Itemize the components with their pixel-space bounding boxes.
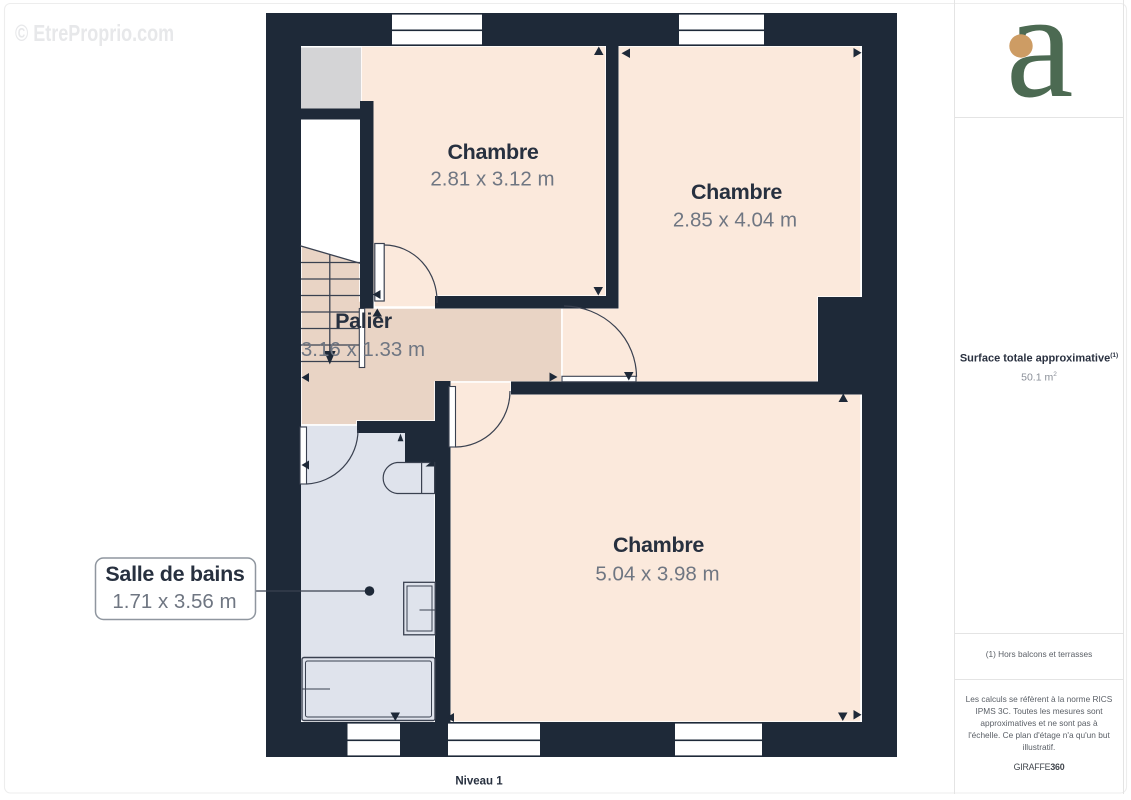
svg-text:Salle de bains: Salle de bains xyxy=(105,562,245,586)
svg-text:Chambre: Chambre xyxy=(613,533,704,557)
svg-text:© EtreProprio.com: © EtreProprio.com xyxy=(15,21,174,47)
svg-text:Palier: Palier xyxy=(335,309,393,333)
svg-text:5.04 x 3.98 m: 5.04 x 3.98 m xyxy=(595,563,719,586)
svg-text:2.81 x 3.12 m: 2.81 x 3.12 m xyxy=(430,168,554,191)
svg-text:Chambre: Chambre xyxy=(447,140,538,164)
svg-text:Niveau 1: Niveau 1 xyxy=(455,776,503,788)
svg-text:Chambre: Chambre xyxy=(691,180,782,204)
svg-text:3.16 x 1.33 m: 3.16 x 1.33 m xyxy=(301,338,425,361)
svg-text:a: a xyxy=(1006,0,1073,117)
svg-text:1.71 x 3.56 m: 1.71 x 3.56 m xyxy=(112,590,236,613)
svg-text:2.85 x 4.04 m: 2.85 x 4.04 m xyxy=(673,209,797,232)
